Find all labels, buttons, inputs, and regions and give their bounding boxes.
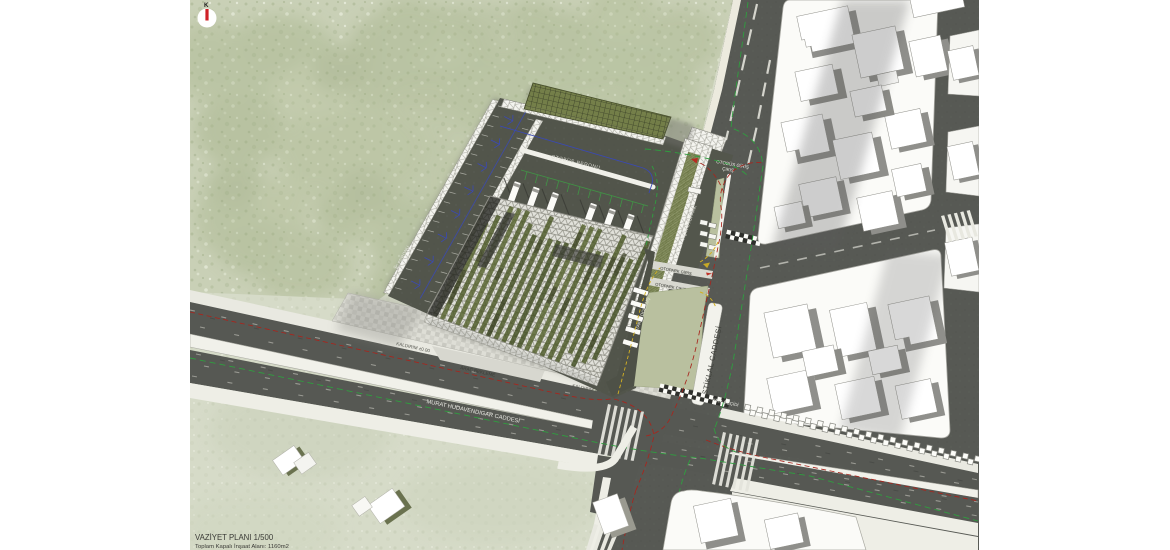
svg-text:K: K <box>204 2 209 9</box>
svg-text:Toplam Kapalı İnşaat Alanı: 11: Toplam Kapalı İnşaat Alanı: 1160m2 <box>195 543 289 550</box>
svg-text:VAZİYET PLANI 1/500: VAZİYET PLANI 1/500 <box>195 533 274 542</box>
